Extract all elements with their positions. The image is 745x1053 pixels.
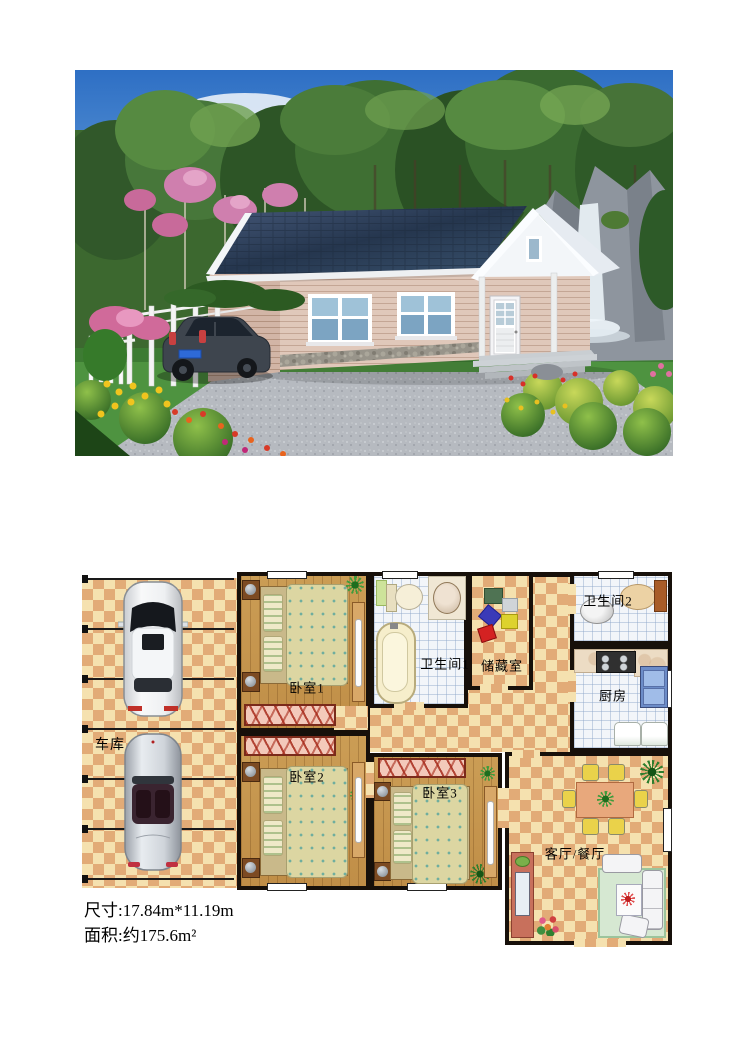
tv-screen [515, 872, 530, 916]
door-opening [334, 706, 368, 730]
door-opening [568, 670, 576, 702]
room-label-bedroom-3: 卧室3 [422, 783, 458, 802]
door-opening [366, 762, 374, 798]
dining-chair [634, 790, 648, 808]
track-end-cap [82, 575, 88, 583]
nightstand [242, 762, 260, 782]
storage-box [501, 614, 518, 629]
window-marker [267, 883, 307, 891]
car-taillight [169, 332, 176, 345]
track-end-cap [82, 875, 88, 883]
appliance [614, 722, 641, 746]
exterior-scene [75, 70, 673, 456]
room-label-bathroom-1: 卫生间1 [420, 654, 470, 673]
track-end-cap [82, 625, 88, 633]
license-plate [179, 350, 201, 358]
dining-chair [608, 818, 625, 835]
wardrobe-bedroom-1 [244, 704, 336, 726]
wall-segment [529, 572, 574, 577]
sofa-seat [602, 854, 642, 873]
sink-basin [643, 688, 665, 705]
pillow [263, 820, 283, 856]
stove [596, 651, 636, 673]
appliance [641, 722, 668, 746]
door-leaf-bedroom-2 [352, 762, 365, 858]
pillow [263, 594, 283, 632]
window-marker [267, 571, 307, 579]
window-marker [663, 808, 672, 852]
track-end-cap [82, 725, 88, 733]
room-label-bedroom-2: 卧室2 [289, 767, 325, 786]
decor-bowl [515, 856, 530, 867]
track-end-cap [82, 825, 88, 833]
blanket [286, 584, 348, 686]
bathtub-inner [382, 632, 408, 692]
door-opening [568, 584, 576, 614]
door-opening [498, 788, 509, 828]
wardrobe-bedroom-3 [378, 758, 466, 778]
house-design-sheet: 车库 卧室1 卧室2 卧室3 卫生间1 卫生间2 储藏室 厨房 客厅/餐厅 尺寸… [0, 0, 745, 1053]
dining-chair [582, 818, 599, 835]
convertible-top-view [120, 732, 186, 874]
door-leaf-bedroom-3 [484, 786, 497, 878]
window-marker [382, 571, 418, 579]
dining-chair [608, 764, 625, 781]
door-opening [512, 750, 540, 758]
porch-column-right [551, 273, 557, 353]
flower-arrangement [536, 914, 562, 936]
spec-area: 面积:约175.6m² [84, 923, 234, 948]
room-label-storage: 储藏室 [481, 656, 523, 675]
nightstand [374, 782, 391, 801]
storage-box [484, 588, 503, 604]
room-label-bathroom-2: 卫生间2 [583, 591, 633, 610]
nightstand [242, 672, 260, 692]
door-leaf-bedroom-1 [352, 602, 365, 702]
palm-plant-icon [640, 760, 664, 784]
track-end-cap [82, 775, 88, 783]
garage-track-line [84, 878, 234, 880]
exterior-rendering-photo [75, 70, 673, 456]
toilet-bowl [395, 584, 423, 610]
nightstand [242, 580, 260, 600]
window-left [306, 294, 374, 346]
suv-top-view [118, 580, 188, 720]
bathtub-faucet [390, 623, 398, 629]
entrance-opening [574, 939, 626, 947]
spec-dimensions: 尺寸:17.84m*11.19m [84, 898, 234, 923]
storage-box [502, 598, 518, 612]
table-plant-icon [597, 791, 614, 807]
plant-icon [480, 766, 495, 781]
attic-window [526, 236, 542, 262]
porch-column-left [479, 277, 485, 357]
plant-icon [346, 576, 364, 594]
pillow [393, 792, 412, 826]
front-door [490, 296, 520, 358]
floor-plan: 车库 卧室1 卧室2 卧室3 卫生间1 卫生间2 储藏室 厨房 客厅/餐厅 [82, 572, 672, 945]
toilet-tank [654, 580, 667, 612]
nightstand [374, 862, 391, 881]
window-right [395, 292, 457, 340]
sink-basin [643, 670, 665, 687]
room-label-living-dining: 客厅/餐厅 [545, 844, 606, 863]
pillow [393, 830, 412, 864]
sink-basin [433, 582, 461, 614]
door-opening [480, 684, 508, 692]
room-label-garage: 车库 [95, 734, 125, 754]
dining-chair [562, 790, 576, 808]
room-label-kitchen: 厨房 [599, 686, 627, 705]
room-label-bedroom-1: 卧室1 [289, 678, 325, 697]
nightstand [242, 858, 260, 878]
window-marker [407, 883, 447, 891]
pillow [263, 776, 283, 814]
table-flowers-icon [621, 892, 635, 906]
track-end-cap [82, 675, 88, 683]
spec-text: 尺寸:17.84m*11.19m 面积:约175.6m² [84, 898, 234, 948]
wardrobe-bedroom-2 [244, 736, 336, 756]
window-marker [598, 571, 634, 579]
garage-track-line [84, 728, 234, 730]
pillow [263, 636, 283, 672]
dining-chair [582, 764, 599, 781]
